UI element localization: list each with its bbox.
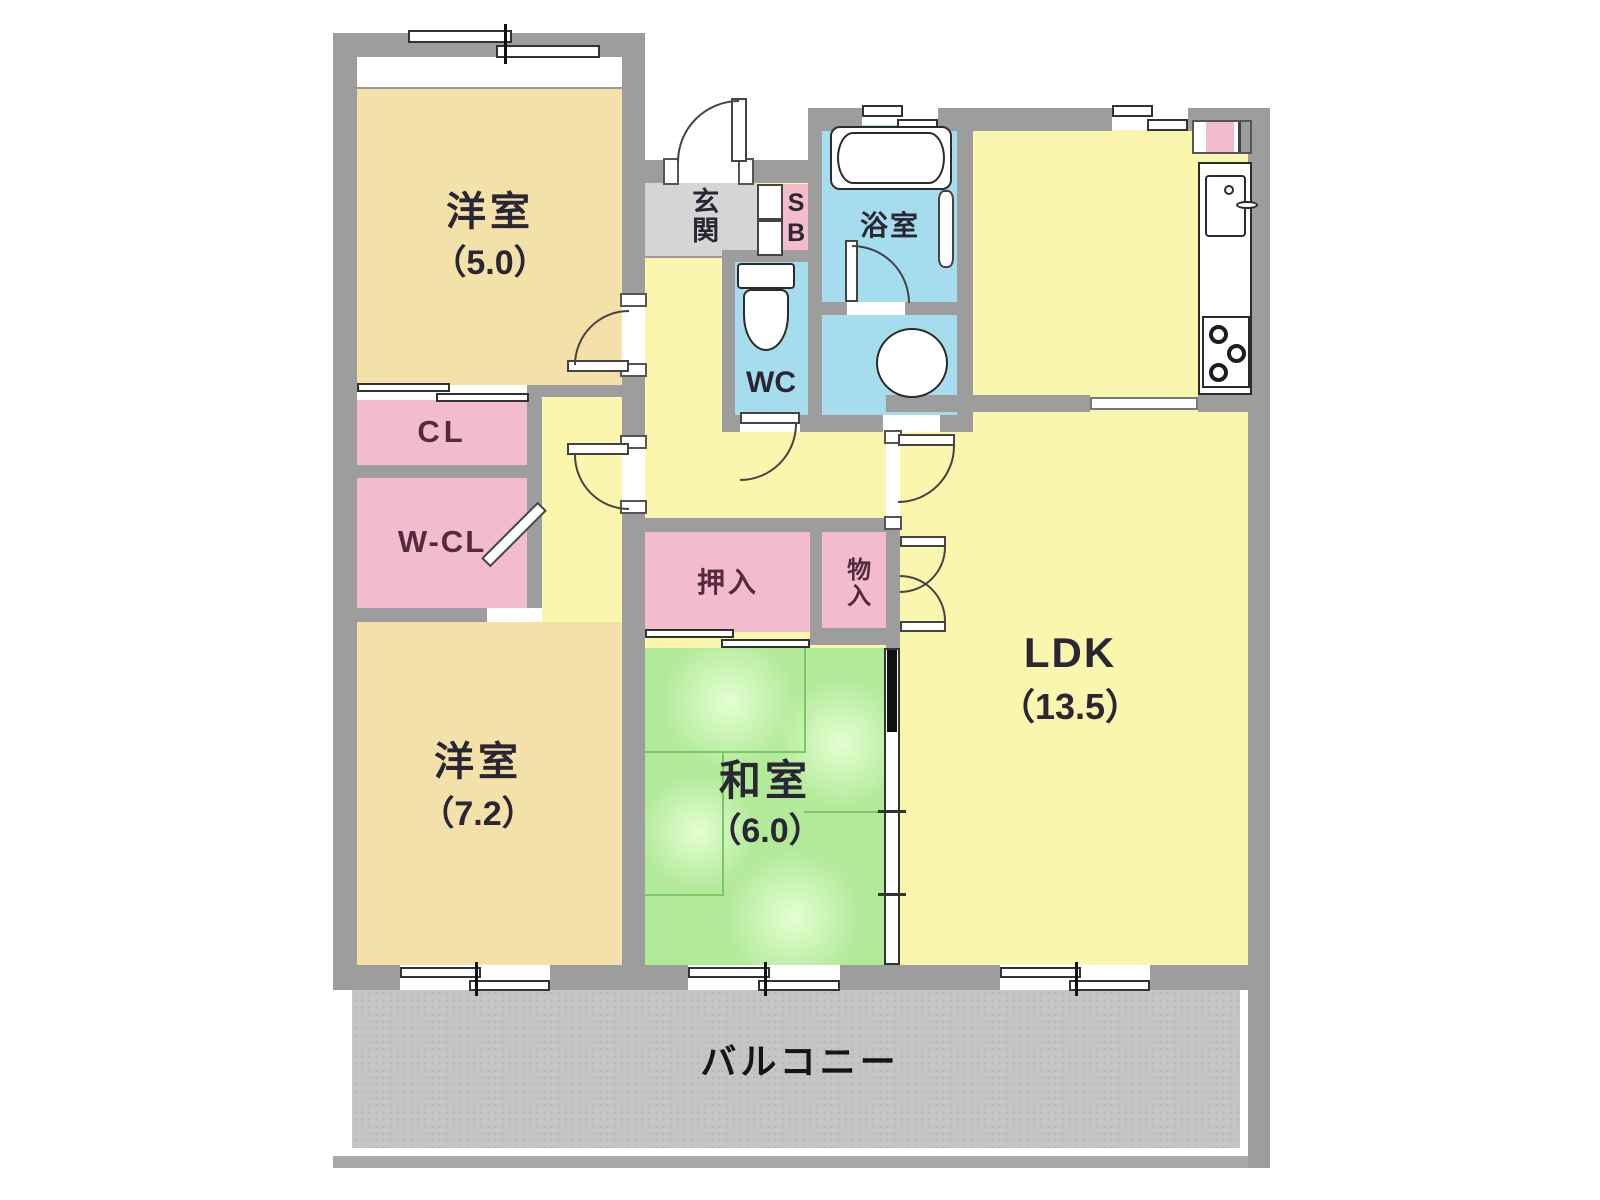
oshiire-sliding-doors <box>645 629 810 648</box>
stove-burner <box>1209 363 1228 382</box>
wcl-label: W-CL <box>365 522 519 562</box>
corridor-door-leaf <box>567 443 629 455</box>
balcony-railing <box>333 1156 1270 1168</box>
wall-south <box>550 965 688 990</box>
japanese-room-label: 和室 <box>675 758 855 804</box>
window-tick <box>764 962 767 997</box>
balcony-label: バルコニー <box>640 1040 960 1084</box>
west-room-7 <box>357 622 622 965</box>
wall-oshiire-divider <box>810 518 822 645</box>
window-panel <box>1000 967 1081 978</box>
window-panel <box>758 980 840 991</box>
wall-kitchen-ldk <box>1198 395 1270 412</box>
wall-wc-bottom <box>722 415 740 432</box>
door-jamb <box>663 158 679 185</box>
window-kitchen <box>1112 105 1188 131</box>
wall-wcl-bottom <box>357 608 487 622</box>
window-panel <box>862 105 903 117</box>
wall-sb-right <box>808 108 822 432</box>
fusuma-tick <box>878 810 906 813</box>
tatami-line <box>804 648 806 753</box>
window-panel <box>1069 980 1150 991</box>
window-panel <box>469 980 550 991</box>
japanese-room-size: （6.0） <box>665 812 865 852</box>
westroom5-label: 洋室 <box>400 190 580 234</box>
door-jamb <box>738 158 754 185</box>
wall-center-spine <box>622 502 645 965</box>
toilet-tank <box>737 263 795 289</box>
stove-burner <box>1227 344 1246 363</box>
shoebox-door <box>757 220 783 256</box>
window-tick <box>475 962 478 997</box>
window-top-westroom5 <box>408 30 600 58</box>
washroom-door-leaf <box>898 434 955 446</box>
entrance-door-arc <box>677 100 739 162</box>
window-panel <box>408 30 512 43</box>
storage-door-leaf <box>900 621 946 632</box>
wall-washroom-bottom <box>940 415 957 432</box>
wall-wc-bottom <box>800 415 822 432</box>
wall-center-spine <box>622 33 645 305</box>
window-panel <box>1147 119 1188 131</box>
wall-south <box>1150 965 1270 990</box>
wc-label: WC <box>733 365 809 401</box>
japanese-room <box>645 648 884 965</box>
west-room-5-window-bay <box>355 57 622 89</box>
wall-oshiire-top <box>645 518 886 532</box>
window-panel <box>400 967 481 978</box>
window-panel <box>688 967 770 978</box>
washing-machine <box>876 328 948 398</box>
wall-bath-kitchen <box>957 108 973 432</box>
window-panel <box>436 393 529 402</box>
window-panel <box>1112 105 1153 117</box>
wall-bath-divider <box>905 302 957 315</box>
shoebox-door <box>757 184 783 220</box>
window-panel <box>357 383 450 392</box>
door-opening <box>677 160 740 183</box>
wall-westroom5-south <box>527 385 622 397</box>
bathtub-inner <box>837 132 945 184</box>
westroom7-size: （7.2） <box>378 795 578 835</box>
door-jamb <box>884 516 902 530</box>
window-tick <box>504 24 507 64</box>
fusuma-panel-closed <box>887 650 897 732</box>
window-panel <box>721 639 810 648</box>
wall-monoire-right <box>886 518 900 648</box>
oshiire-label: 押入 <box>675 565 781 601</box>
stove-burner <box>1209 325 1228 344</box>
wall-south <box>333 965 400 990</box>
window-panel <box>645 629 734 638</box>
wall-washroom-bottom <box>822 415 883 432</box>
kitchen-pass-opening <box>1090 397 1198 410</box>
floor-plan: 洋室 （5.0） 玄関 SB 浴室 WC CL W-CL 洋室 （7.2） 押入… <box>0 0 1600 1200</box>
wall-south <box>840 965 1000 990</box>
westroom7-label: 洋室 <box>388 740 568 784</box>
wc-door-leaf <box>740 412 800 424</box>
window-tick <box>1075 962 1078 997</box>
wall-cl-divider <box>357 465 527 478</box>
tatami-line <box>645 894 724 896</box>
closet-sliding-doors <box>357 383 529 402</box>
wall-monoire-bottom <box>822 628 886 645</box>
westroom5-size: （5.0） <box>390 244 590 284</box>
cl-label: CL <box>390 413 494 451</box>
wall-left <box>333 33 357 990</box>
balcony-door-westroom7 <box>400 967 550 991</box>
kitchen-faucet-handle <box>1236 201 1258 209</box>
wall-bath-divider <box>822 302 847 315</box>
wall-cl-right <box>527 397 542 608</box>
ldk-label: LDK <box>980 630 1160 676</box>
storage-label: 物入 <box>840 548 872 618</box>
fridge-space-pink <box>1206 122 1234 152</box>
balcony-door-ldk <box>1000 967 1150 991</box>
bathroom-label: 浴室 <box>835 208 945 244</box>
corridor-floor <box>542 397 630 622</box>
kitchen-faucet <box>1224 185 1234 195</box>
wall-wc-left <box>722 255 735 432</box>
tatami-line <box>645 751 805 753</box>
storage-door-leaf <box>900 536 946 547</box>
entrance-label: 玄関 <box>685 185 721 247</box>
fusuma-tick <box>878 893 906 896</box>
shoebox-label: SB <box>781 186 811 252</box>
balcony-door-japanese-room <box>688 967 840 991</box>
door-jamb <box>620 293 647 307</box>
door-opening <box>847 302 905 315</box>
ldk-size: （13.5） <box>965 686 1175 728</box>
window-panel <box>496 45 600 58</box>
fridge-space-gray <box>1238 122 1250 152</box>
